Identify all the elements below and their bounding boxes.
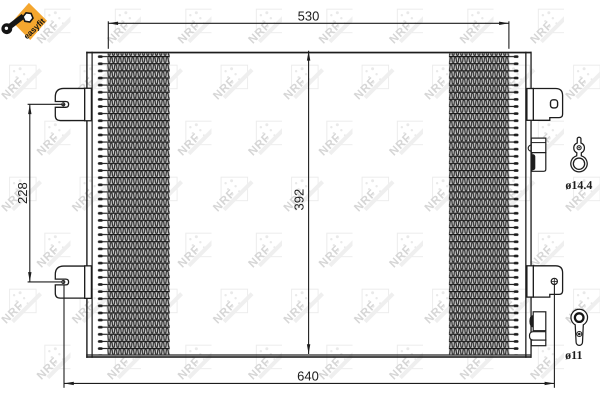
svg-text:392: 392: [292, 189, 307, 211]
svg-text:228: 228: [15, 182, 30, 204]
svg-text:ø11: ø11: [565, 348, 582, 362]
svg-text:530: 530: [298, 8, 320, 23]
svg-text:ø14.4: ø14.4: [565, 178, 592, 192]
svg-text:640: 640: [297, 368, 319, 383]
